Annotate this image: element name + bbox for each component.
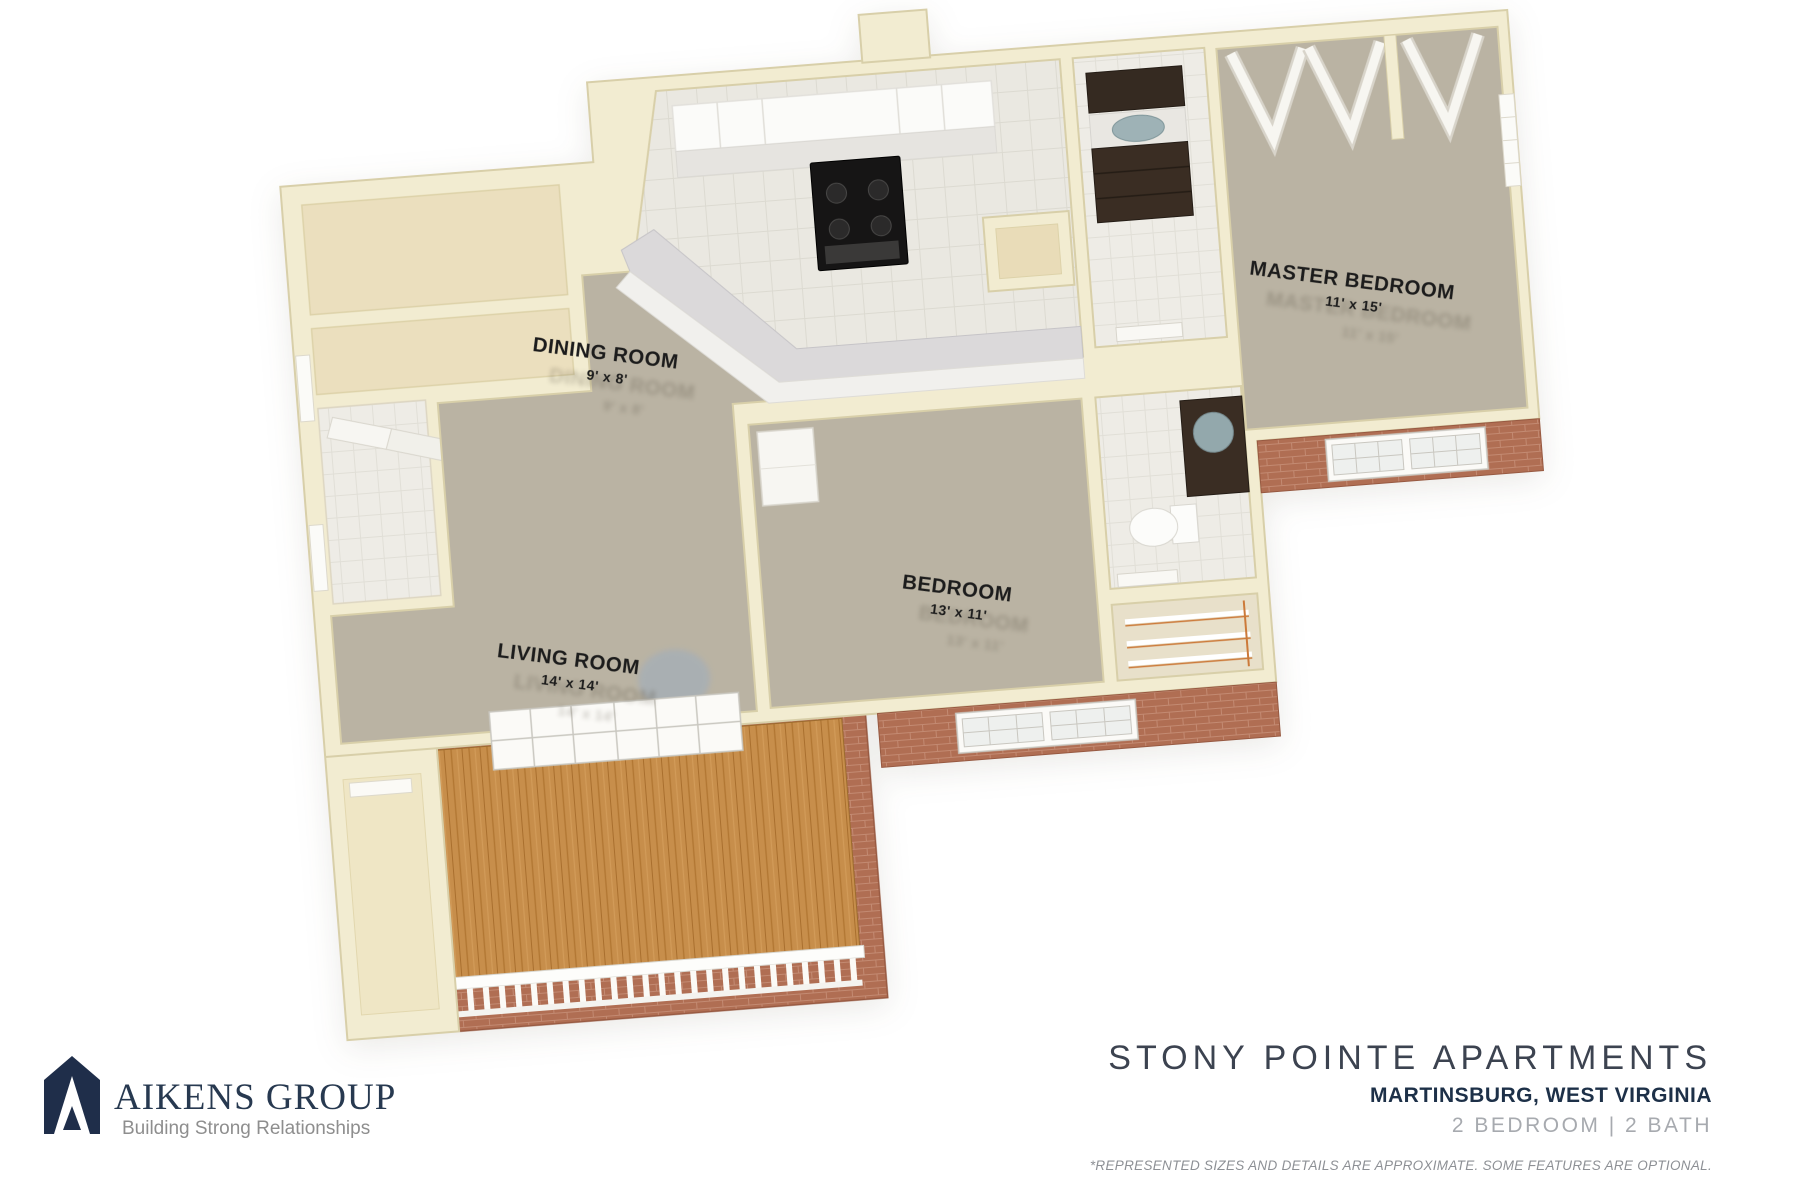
property-configuration: 2 BEDROOM | 2 BATH (952, 1114, 1712, 1138)
bedroom (748, 399, 1103, 708)
porch-storage-closet (325, 748, 459, 1040)
floorplan-page: DINING ROOM 9' x 8' LIVING ROOM 14' x 14… (0, 0, 1800, 1200)
property-disclaimer: *REPRESENTED SIZES AND DETAILS ARE APPRO… (952, 1158, 1712, 1173)
laundry-closet (1112, 593, 1264, 680)
wall-stub (859, 10, 931, 63)
floor-plan: DINING ROOM 9' x 8' LIVING ROOM 14' x 14… (212, 0, 1617, 1071)
logo-tagline: Building Strong Relationships (122, 1118, 370, 1140)
master-bathroom (1073, 48, 1227, 347)
vanity-cabinet (1092, 141, 1194, 222)
property-name: STONY POINTE APARTMENTS (952, 1040, 1712, 1077)
master-bedroom (1216, 26, 1538, 430)
floor-plan-render: DINING ROOM 9' x 8' LIVING ROOM 14' x 14… (212, 0, 1617, 1071)
property-location: MARTINSBURG, WEST VIRGINIA (952, 1084, 1712, 1108)
property-info: STONY POINTE APARTMENTS MARTINSBURG, WES… (952, 1040, 1712, 1173)
hall-bathroom (1095, 386, 1256, 589)
aikens-logo-icon (40, 1052, 104, 1138)
logo-name: AIKENS GROUP (114, 1076, 396, 1119)
entry-closet-upper (302, 185, 568, 315)
vanity-mirror (1086, 66, 1185, 113)
stove (810, 156, 908, 271)
